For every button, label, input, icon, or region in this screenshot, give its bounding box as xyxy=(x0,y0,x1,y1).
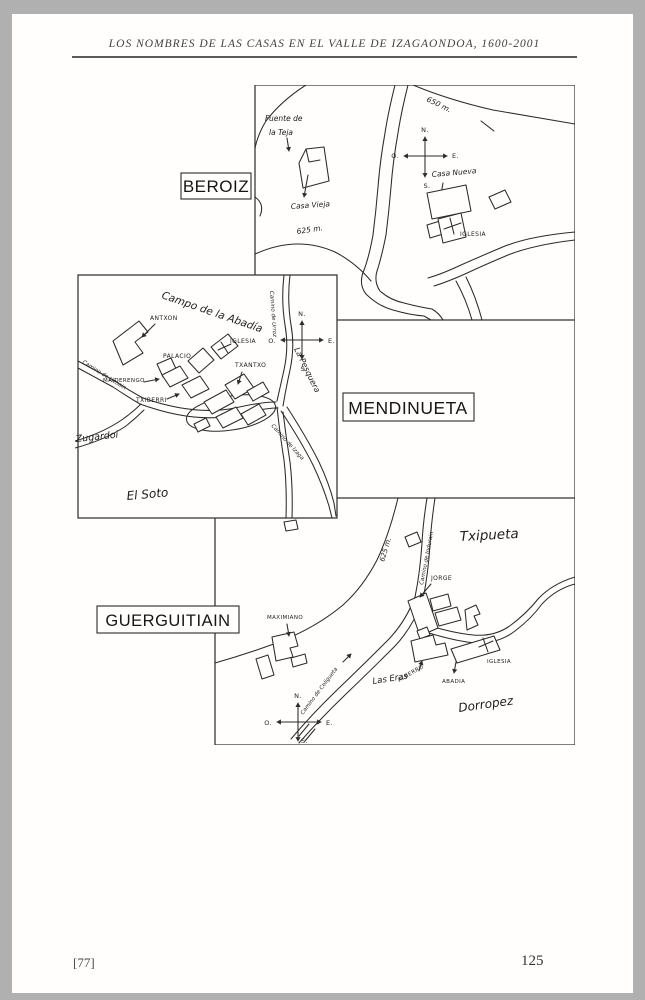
compass-e-label: E. xyxy=(326,719,333,727)
page-number: 125 xyxy=(521,953,544,970)
outbuilding xyxy=(284,520,298,531)
compass-n-label: N. xyxy=(421,126,429,134)
label-txiberri: TXIBERRI xyxy=(135,397,167,404)
label-iglesia-mendinueta: IGLESIA xyxy=(230,338,257,345)
compass-s-label: S. xyxy=(424,182,431,190)
label-iglesia-beroiz: IGLESIA xyxy=(460,231,487,238)
label-txantxo: TXANTXO xyxy=(234,362,266,369)
beroiz-title: BEROIZ xyxy=(183,177,249,196)
compass-n-label: N. xyxy=(294,692,302,700)
label-antxon: ANTXON xyxy=(150,315,178,322)
compass-o-label: O. xyxy=(391,152,399,160)
label-txipueta: Txipueta xyxy=(459,526,519,545)
compass-e-label: E. xyxy=(328,337,335,345)
compass-e-label: E. xyxy=(452,152,459,160)
label-abadia: ABADIA xyxy=(442,679,465,685)
label-fuente-line2: la Teja xyxy=(269,128,293,137)
mendinueta-title: MENDINUETA xyxy=(348,398,467,418)
guerguitiain-panel-border xyxy=(215,498,575,745)
mendinueta-map-panel: N. E. O. S. Campo de la Abadía ANTXON IG… xyxy=(75,275,337,518)
footnote-number: [77] xyxy=(73,955,95,971)
guerguitiain-map-panel: N. E. O. S. Txipueta 625 m. Camino de In… xyxy=(215,498,575,745)
guerguitiain-title: GUERGUITIAIN xyxy=(105,612,230,630)
label-iglesia-guerguitiain: IGLESIA xyxy=(487,659,511,665)
maps-figure: N. E. O. S. 650 m. Fuente de la Teja Cas… xyxy=(75,85,575,745)
compass-o-label: O. xyxy=(268,337,276,345)
compass-o-label: O. xyxy=(264,719,272,727)
label-jorge: JORGE xyxy=(430,575,452,582)
compass-n-label: N. xyxy=(298,310,306,318)
scanned-page: LOS NOMBRES DE LAS CASAS EN EL VALLE DE … xyxy=(0,0,645,1000)
page-header: LOS NOMBRES DE LAS CASAS EN EL VALLE DE … xyxy=(72,38,577,58)
label-palacio: PALACIO xyxy=(163,353,191,360)
casa-vieja-building xyxy=(299,147,329,188)
compass-s-label: S. xyxy=(301,737,308,745)
label-maximiano: MAXIMIANO xyxy=(267,615,303,621)
label-fuente-line1: Fuente de xyxy=(265,114,303,123)
